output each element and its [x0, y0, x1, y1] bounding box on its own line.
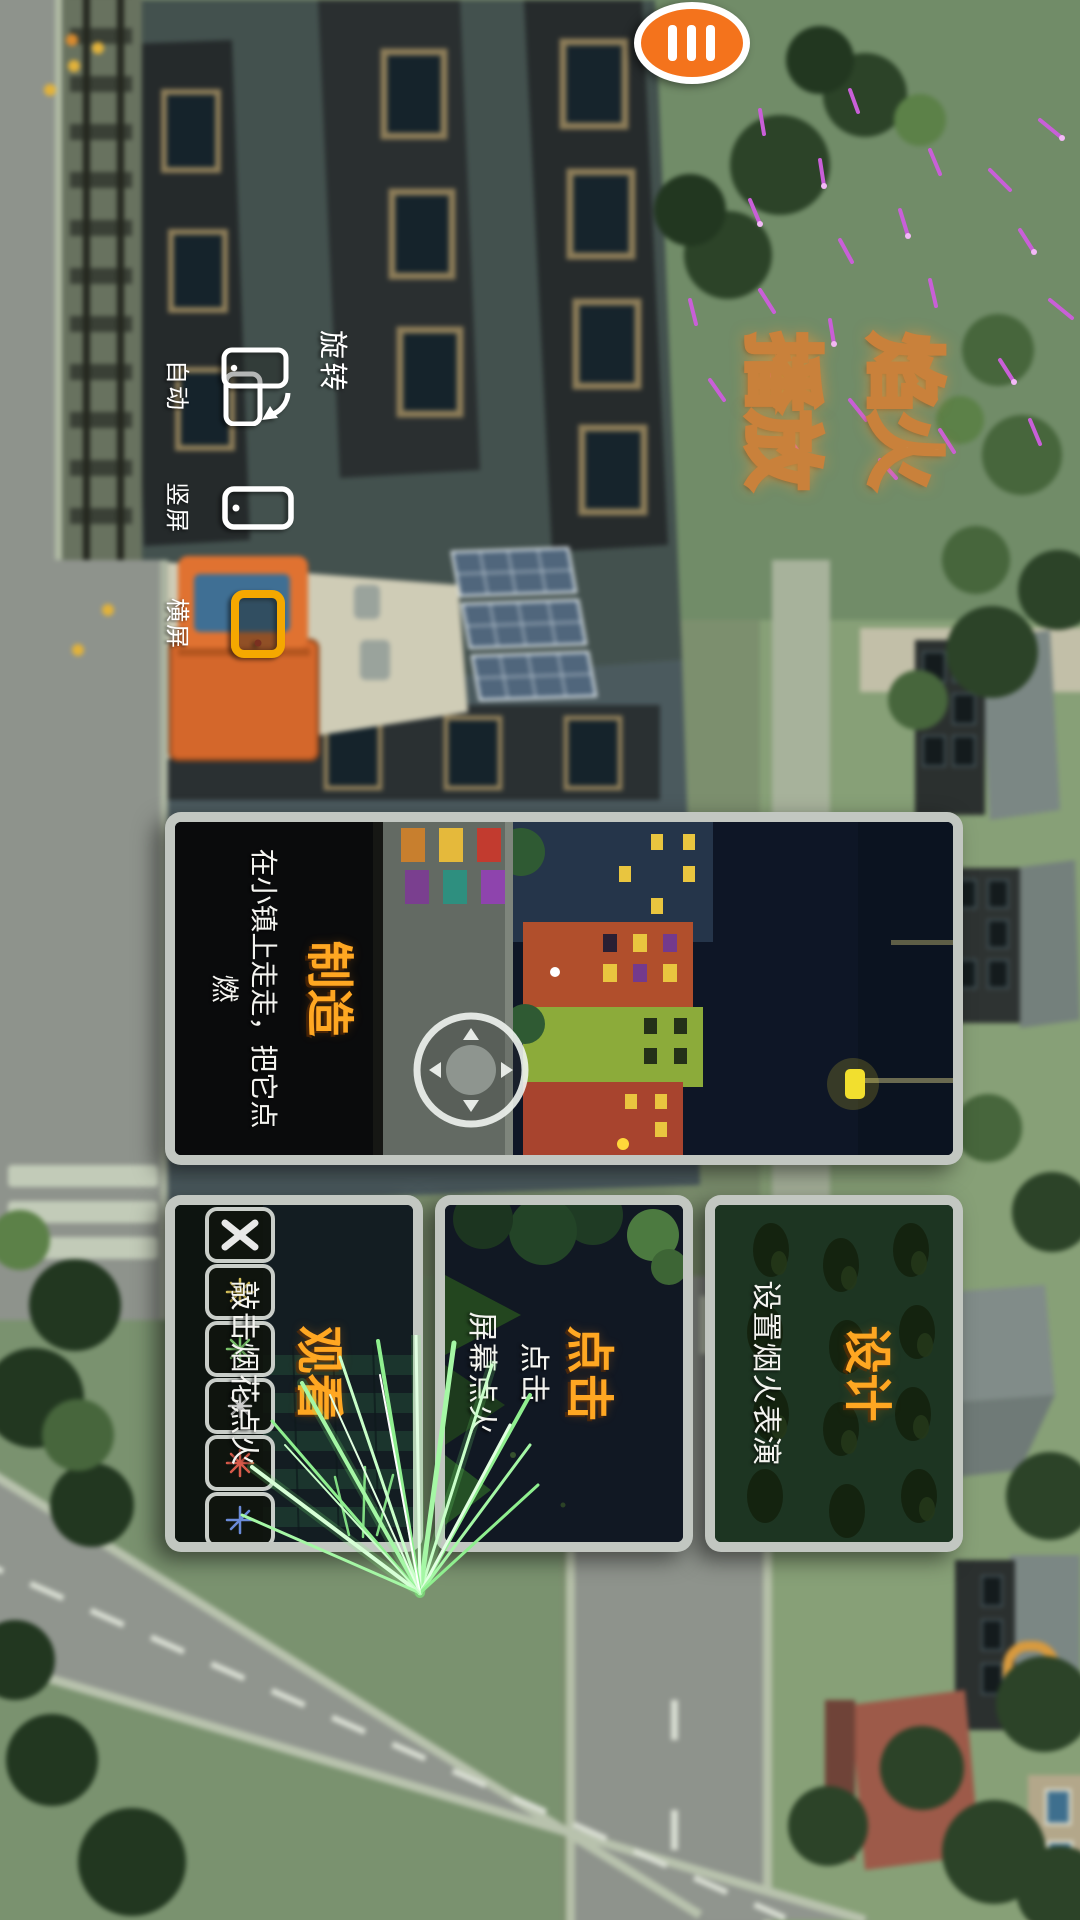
- watch-card-title: 观看: [289, 1205, 359, 1542]
- game-title-line2: 播放: [720, 280, 842, 540]
- design-card-title: 设计: [837, 1205, 907, 1542]
- rotation-option-label: 竖屏: [162, 482, 197, 534]
- railroad-track: [60, 0, 142, 580]
- rotation-option-label: 横屏: [162, 598, 197, 650]
- landscape-phone-icon: [231, 590, 285, 658]
- portrait-phone-icon: [221, 485, 295, 531]
- create-card-caption: 制造 在小镇上走走，把它点燃: [175, 822, 383, 1155]
- create-card-title: 制造: [299, 822, 369, 1155]
- auto-rotate-icon: [216, 346, 300, 426]
- mode-card-create[interactable]: 制造 在小镇上走走，把它点燃: [165, 812, 963, 1165]
- design-card-subtitle: 设置烟火表演: [747, 1205, 791, 1542]
- game-title-line1: 焰火: [842, 280, 964, 540]
- menu-button[interactable]: [634, 2, 750, 84]
- rotation-option-portrait[interactable]: 竖屏: [162, 466, 304, 550]
- rotation-option-label: 自动: [162, 360, 197, 412]
- tap-card-subtitle-line2: 屏幕点火: [463, 1205, 507, 1542]
- tap-card-title: 点击: [559, 1205, 629, 1542]
- tap-card-subtitle-line1: 点击: [515, 1205, 559, 1542]
- mode-card-watch[interactable]: 观看 敲击烟花点火: [165, 1195, 423, 1552]
- game-title: 焰火 播放: [720, 280, 964, 540]
- mode-card-design[interactable]: 设计 设置烟火表演: [705, 1195, 963, 1552]
- rotation-control-panel: 旋转 自动 竖屏 横屏: [156, 300, 356, 700]
- joystick-graphic: [417, 1016, 525, 1124]
- create-card-description: 在小镇上走走，把它点燃: [205, 843, 283, 1135]
- hamburger-icon: [664, 25, 721, 61]
- landscape-canvas: 焰火 播放 旋转 自动 竖屏: [0, 0, 1080, 1920]
- watch-card-subtitle: 敲击烟花点火: [225, 1205, 269, 1542]
- rotation-option-auto[interactable]: 自动: [162, 344, 304, 428]
- rotation-label: 旋转: [314, 330, 356, 394]
- screen: 焰火 播放 旋转 自动 竖屏: [0, 0, 1080, 1920]
- rotation-option-landscape[interactable]: 横屏: [162, 582, 304, 666]
- mode-card-tap[interactable]: 点击 点击 屏幕点火: [435, 1195, 693, 1552]
